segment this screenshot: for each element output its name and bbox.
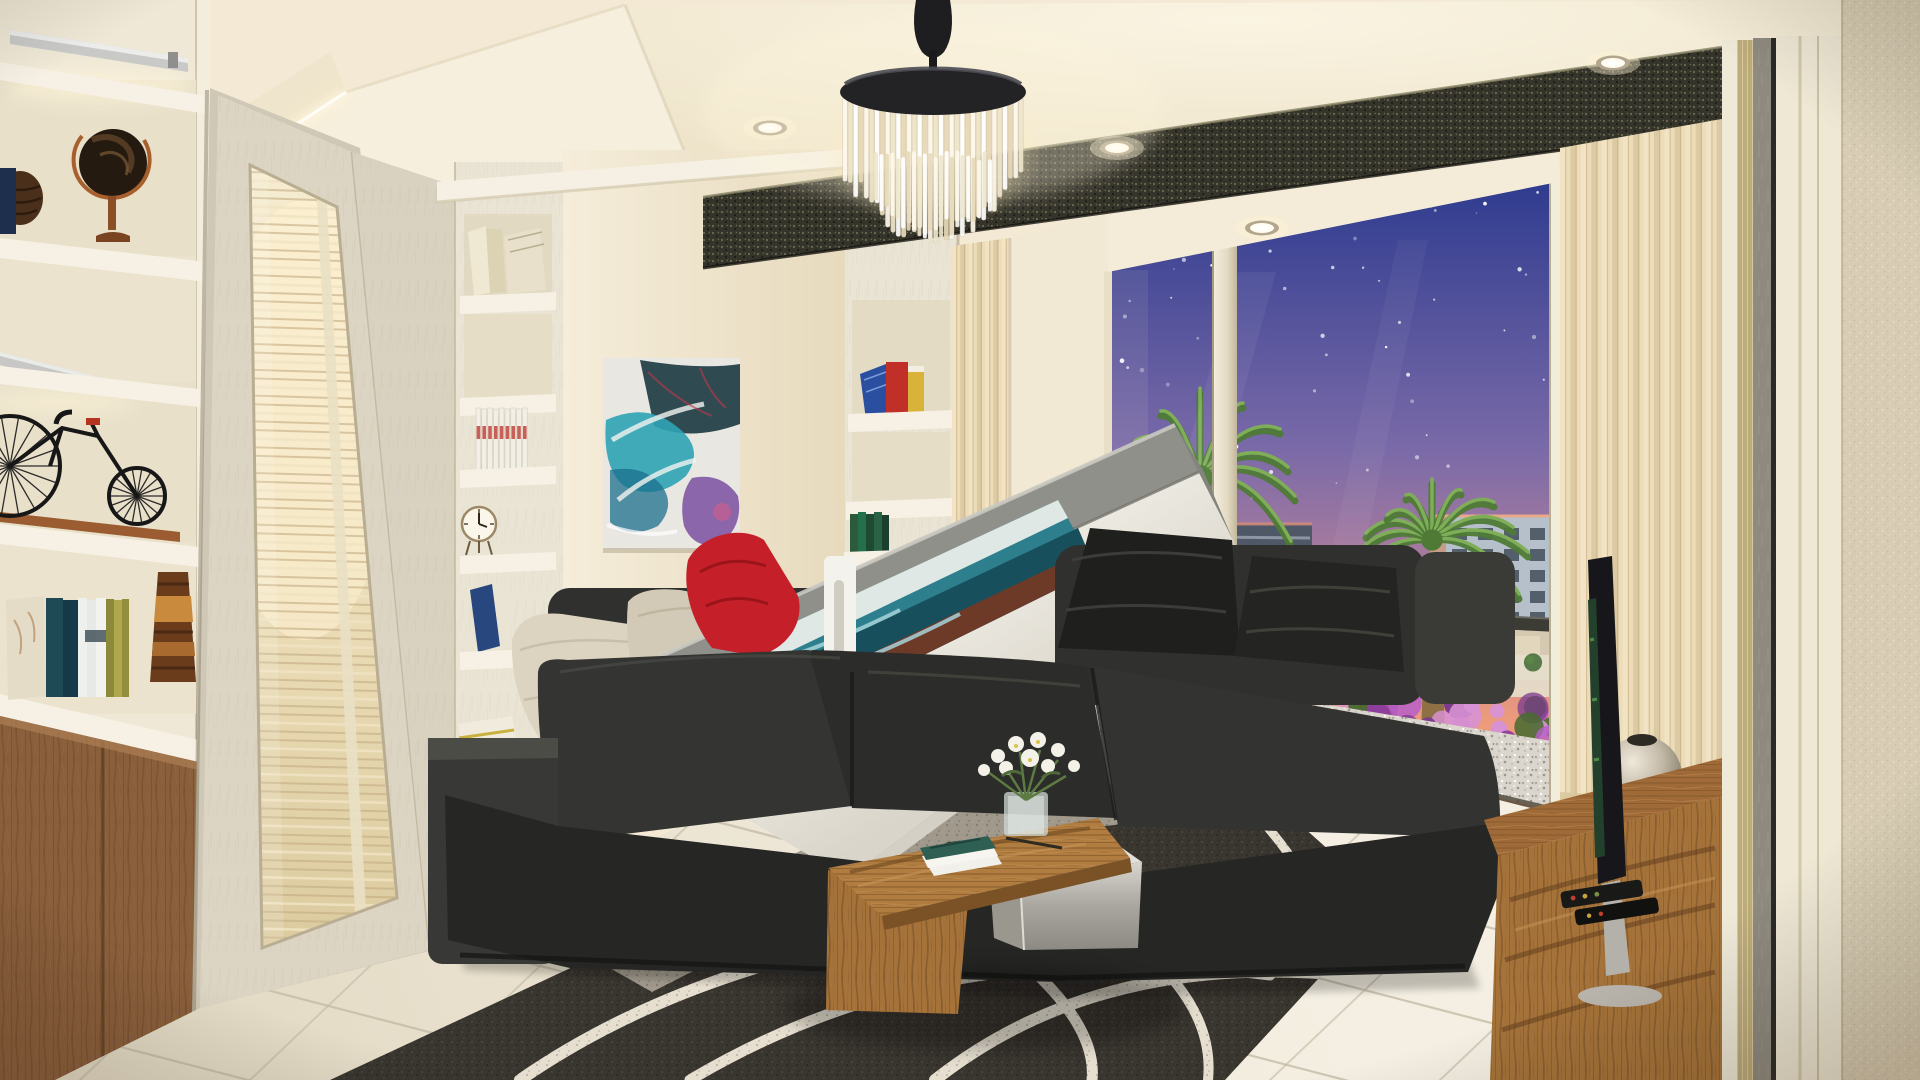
interior-render: Photorealistic 3D interior rendering: co… — [0, 0, 1920, 1080]
screenshot-root: Photorealistic 3D interior rendering: co… — [0, 0, 1920, 1080]
vignette — [0, 0, 1920, 1080]
